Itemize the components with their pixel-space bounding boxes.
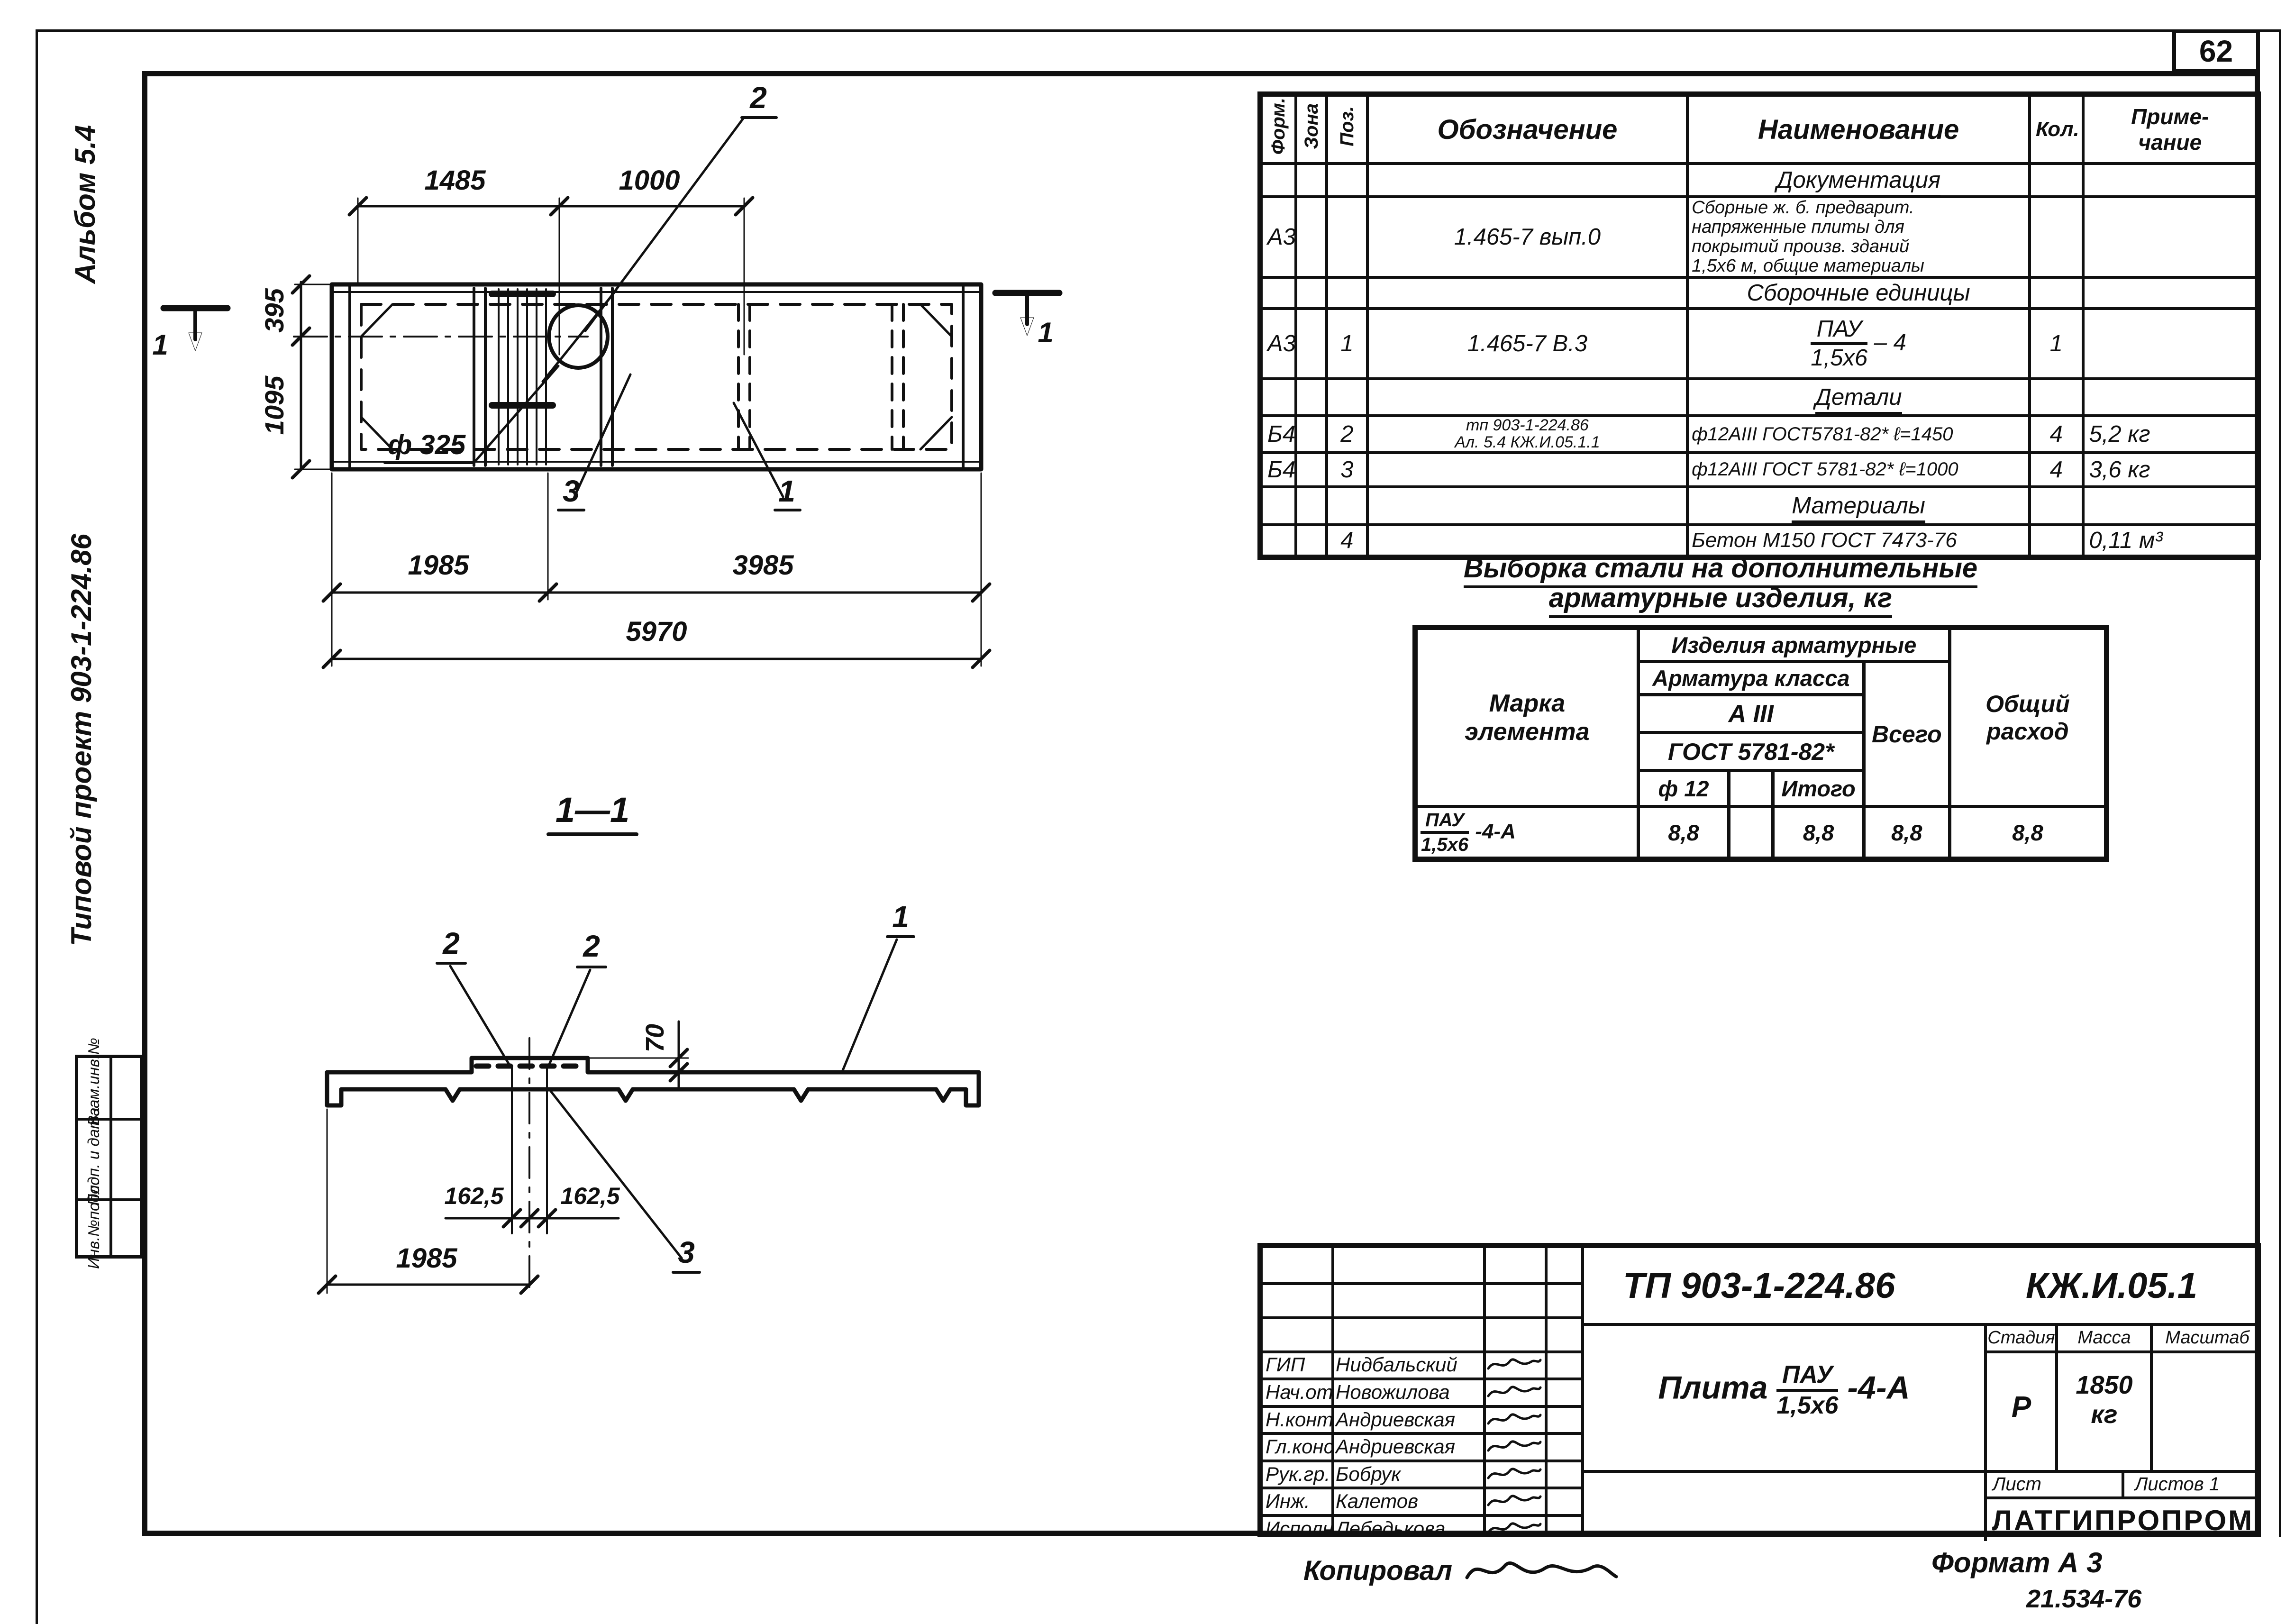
- sig-role-1: Нач.отд.: [1263, 1379, 1331, 1405]
- plan-callout-3: 3: [558, 374, 630, 510]
- signature-scribble: [1485, 1464, 1542, 1485]
- album-label: Альбом 5.4: [67, 72, 104, 337]
- steel-sub-header: Арматура класса: [1638, 662, 1864, 695]
- title-block: ГИП Нидбальский Нач.отд. Новожилова Н.ко…: [1257, 1243, 2261, 1537]
- sig-name-5: Калетов: [1333, 1488, 1483, 1515]
- spec-item-row: Б4 3 ф12АIII ГОСТ 5781-82* ℓ=1000 4 3,6 …: [1260, 453, 2259, 487]
- section-dim-1985: 1985: [319, 1109, 538, 1293]
- steel-gost: ГОСТ 5781-82*: [1638, 733, 1864, 771]
- doc-code: ТП 903-1-224.86: [1623, 1265, 1907, 1306]
- spec-section-row: Сборочные единицы: [1260, 277, 2259, 309]
- organization: ЛАТГИПРОПРОМ: [1985, 1504, 2260, 1537]
- sig-role-2: Н.контр.: [1263, 1406, 1331, 1433]
- svg-text:162,5: 162,5: [560, 1183, 620, 1209]
- drawing-sheet: 62 Альбом 5.4 Типовой проект 903-1-224.8…: [0, 0, 2295, 1624]
- spec-item-row: Б4 2 тп 903-1-224.86 Ал. 5.4 КЖ.И.05.1.1…: [1260, 416, 2259, 452]
- plan-section-mark-left: 1: [152, 308, 228, 361]
- margin-stamp-block: Взам.инв.№ Подп. и дата Инв.№подл.: [75, 1055, 143, 1259]
- col-qty: Кол.: [2030, 94, 2083, 164]
- plan-ribs-and-anchors: [474, 288, 903, 465]
- copied-label: Копировал: [1303, 1555, 1452, 1587]
- signature-scribble: [1485, 1382, 1542, 1403]
- dim-1095: 1095: [259, 375, 289, 435]
- spec-section-row: Детали: [1260, 379, 2259, 416]
- plan-callout-1: 1: [734, 403, 800, 510]
- sheet-border-top: [36, 29, 2281, 32]
- sheets-label: Листов 1: [2135, 1474, 2258, 1495]
- svg-text:3: 3: [678, 1235, 695, 1269]
- dim-1985: 1985: [408, 550, 469, 581]
- plan-view-drawing: 1 1 1485 1000 2: [142, 71, 1213, 782]
- section-callout-2a: 2: [437, 926, 511, 1067]
- svg-text:1: 1: [892, 900, 909, 934]
- plan-section-mark-right: 1: [995, 293, 1059, 348]
- steel-col-total: Общий расход: [1949, 628, 2106, 807]
- mark-fraction: ПАУ 1,5х6: [1811, 317, 1867, 371]
- mass-value: 1850 кг: [2058, 1370, 2150, 1429]
- sheet-border-left: [36, 29, 38, 1624]
- page-number: 62: [2199, 34, 2233, 68]
- signature-scribble: [1485, 1518, 1542, 1539]
- svg-text:2: 2: [442, 926, 460, 960]
- sig-name-4: Бобрук: [1333, 1461, 1483, 1487]
- sig-name-1: Новожилова: [1333, 1379, 1483, 1405]
- dim-395: 395: [259, 288, 289, 332]
- item-name: Плита ПАУ 1,5х6 -4-А: [1594, 1362, 1974, 1418]
- svg-text:2: 2: [583, 929, 600, 963]
- footer-number: 21.534-76: [2026, 1584, 2141, 1614]
- dim-3985: 3985: [732, 550, 794, 581]
- svg-text:1—1: 1—1: [556, 790, 629, 830]
- section-callout-3: 3: [551, 1091, 700, 1272]
- col-format: Форм.: [1260, 94, 1296, 164]
- col-pos: Поз.: [1327, 94, 1367, 164]
- drawing-code: КЖ.И.05.1: [2026, 1265, 2244, 1306]
- spec-section-row: Документация: [1260, 164, 2259, 197]
- sig-role-4: Рук.гр.: [1263, 1461, 1331, 1487]
- steel-class: А III: [1638, 695, 1864, 733]
- dim-1485: 1485: [424, 165, 486, 196]
- page-number-box: 62: [2172, 29, 2260, 73]
- steel-table-title: Выборка стали на дополнительные арматурн…: [1365, 554, 2076, 613]
- spec-section-row: Материалы: [1260, 487, 2259, 525]
- plan-dim-left: 395 1095: [259, 276, 334, 478]
- signature-scribble: [1485, 1354, 1542, 1375]
- steel-itogo: Итого: [1773, 771, 1864, 807]
- stamp-inv-podl: Инв.№подл.: [86, 1191, 102, 1269]
- signature-scribble: [1485, 1436, 1542, 1457]
- section-title: 1—1: [548, 790, 637, 834]
- section-callout-1: 1: [843, 900, 914, 1070]
- sig-role-6: Исполн.: [1263, 1515, 1331, 1542]
- col-designation: Обозначение: [1367, 94, 1688, 164]
- dim-5970: 5970: [626, 616, 687, 647]
- sig-name-0: Нидбальский: [1333, 1351, 1483, 1378]
- col-note: Приме- чание: [2083, 94, 2259, 164]
- section-dim-70: 70: [588, 1022, 688, 1089]
- steel-mark-fraction: ПАУ 1,5х6: [1421, 810, 1469, 855]
- spec-item-row: А3 1.465-7 вып.0 Сборные ж. б. предварит…: [1260, 197, 2259, 277]
- svg-text:1985: 1985: [396, 1243, 457, 1274]
- sig-name-6: Лебедькова: [1333, 1515, 1483, 1542]
- plan-dim-bottom: 1985 3985 5970: [323, 473, 990, 667]
- mass-label: Масса: [2058, 1328, 2150, 1348]
- section-view-drawing: 1—1 2 2 70 1: [142, 782, 1213, 1375]
- col-name: Наименование: [1687, 94, 2030, 164]
- spec-item-row: А3 1 1.465-7 В.3 ПАУ 1,5х6 – 4 1: [1260, 309, 2259, 379]
- dim-1000: 1000: [619, 165, 680, 196]
- format-note: Формат А 3: [1931, 1546, 2103, 1579]
- specification-table: Форм. Зона Поз. Обозначение Наименование…: [1257, 91, 2261, 560]
- spec-item-row: 4 Бетон М150 ГОСТ 7473-76 0,11 м³: [1260, 525, 2259, 557]
- project-label: Типовой проект 903-1-224.86: [63, 403, 100, 1077]
- svg-text:2: 2: [749, 81, 767, 115]
- signature-scribble: [1485, 1491, 1542, 1512]
- section-dims-162: 162,5 162,5: [444, 1183, 620, 1227]
- steel-table: Марка элемента Изделия арматурные Общий …: [1412, 625, 2109, 862]
- sheet-border-right: [2279, 29, 2281, 1537]
- steel-col-mark: Марка элемента: [1415, 628, 1639, 807]
- col-zone: Зона: [1296, 94, 1327, 164]
- copied-signature-scribble: [1460, 1549, 1621, 1592]
- sig-name-3: Андриевская: [1333, 1433, 1483, 1460]
- signature-scribble: [1485, 1409, 1542, 1430]
- steel-col-vsego: Всего: [1864, 662, 1949, 807]
- section-mark-label: 1: [1038, 317, 1053, 348]
- svg-text:70: 70: [641, 1024, 669, 1052]
- svg-text:ф 325: ф 325: [388, 429, 466, 460]
- section-mark-label: 1: [152, 329, 168, 361]
- sig-role-3: Гл.конст.: [1263, 1433, 1331, 1460]
- section-callout-2b: 2: [548, 929, 606, 1067]
- sig-role-5: Инж.: [1263, 1488, 1331, 1515]
- sheet-label: Лист: [1993, 1474, 2087, 1495]
- sig-name-2: Андриевская: [1333, 1406, 1483, 1433]
- sig-role-0: ГИП: [1263, 1351, 1331, 1378]
- svg-text:162,5: 162,5: [444, 1183, 504, 1209]
- plan-pipe-label: ф 325: [385, 366, 558, 463]
- stage-label: Стадия: [1987, 1328, 2056, 1348]
- steel-dia: ф 12: [1638, 771, 1729, 807]
- steel-data-row: ПАУ 1,5х6 -4-А 8,8 8,8 8,8 8,8: [1415, 807, 2107, 859]
- scale-label: Масштаб: [2153, 1328, 2262, 1348]
- stage-value: Р: [1987, 1390, 2056, 1424]
- steel-group-header: Изделия арматурные: [1638, 628, 1949, 662]
